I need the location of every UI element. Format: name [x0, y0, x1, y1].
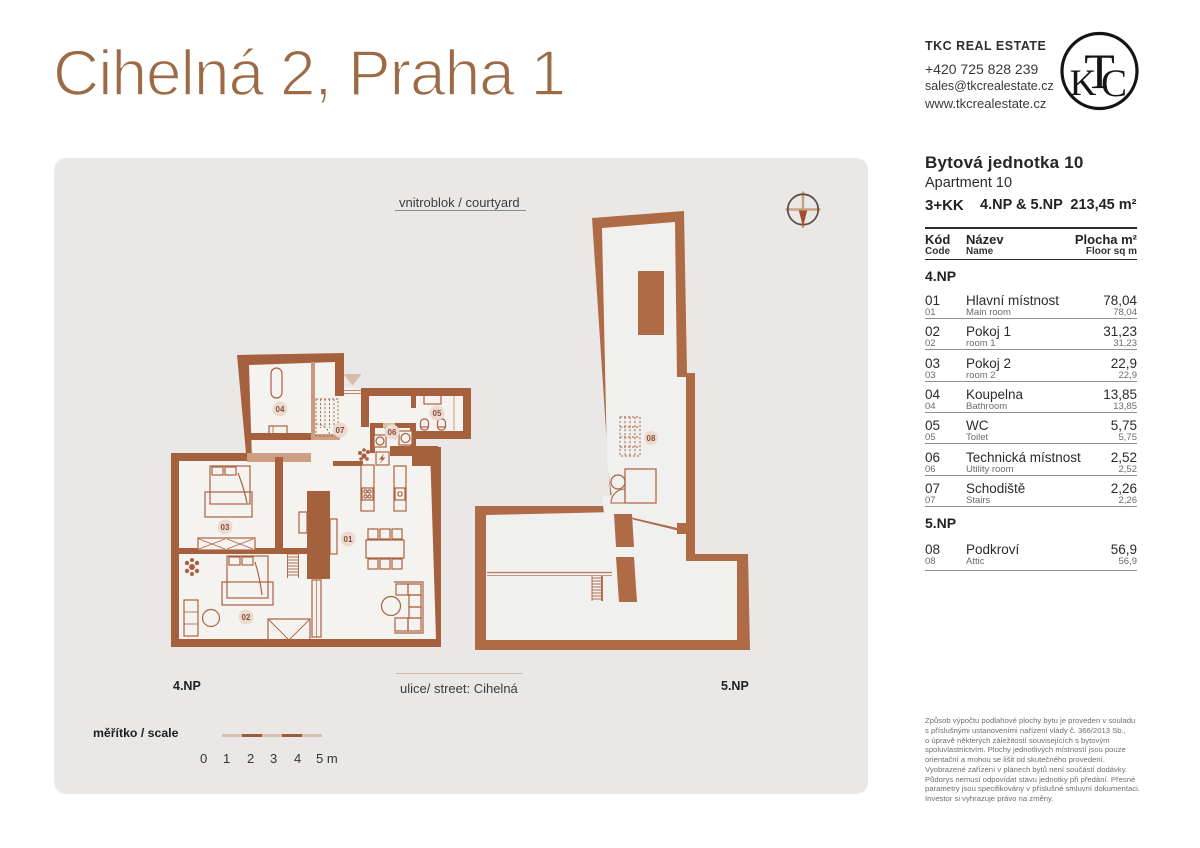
svg-text:02: 02	[242, 613, 251, 622]
svg-text:07: 07	[336, 426, 345, 435]
svg-text:03: 03	[221, 523, 230, 532]
svg-text:05: 05	[433, 409, 442, 418]
svg-text:06: 06	[388, 428, 397, 437]
svg-text:04: 04	[276, 405, 285, 414]
svg-text:08: 08	[647, 434, 656, 443]
svg-text:01: 01	[344, 535, 353, 544]
